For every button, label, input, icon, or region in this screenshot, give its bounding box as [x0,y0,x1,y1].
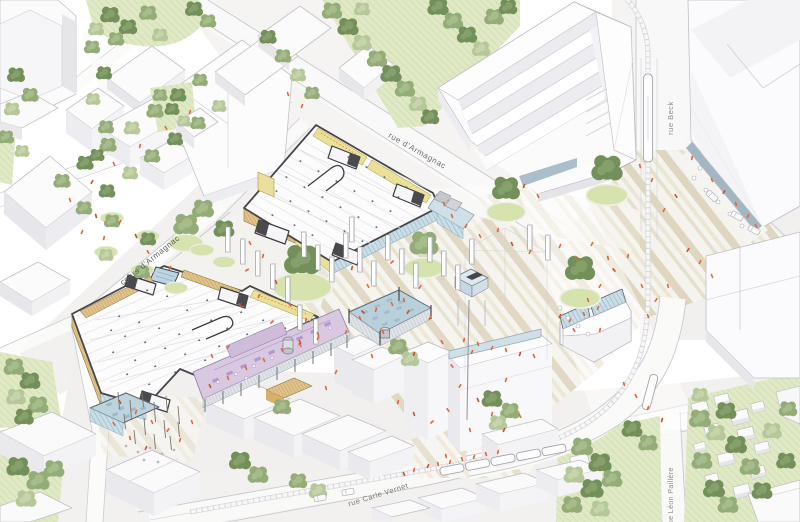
svg-text:rue Beck: rue Beck [666,101,675,135]
svg-text:rue Léon Paillère: rue Léon Paillère [668,467,675,522]
